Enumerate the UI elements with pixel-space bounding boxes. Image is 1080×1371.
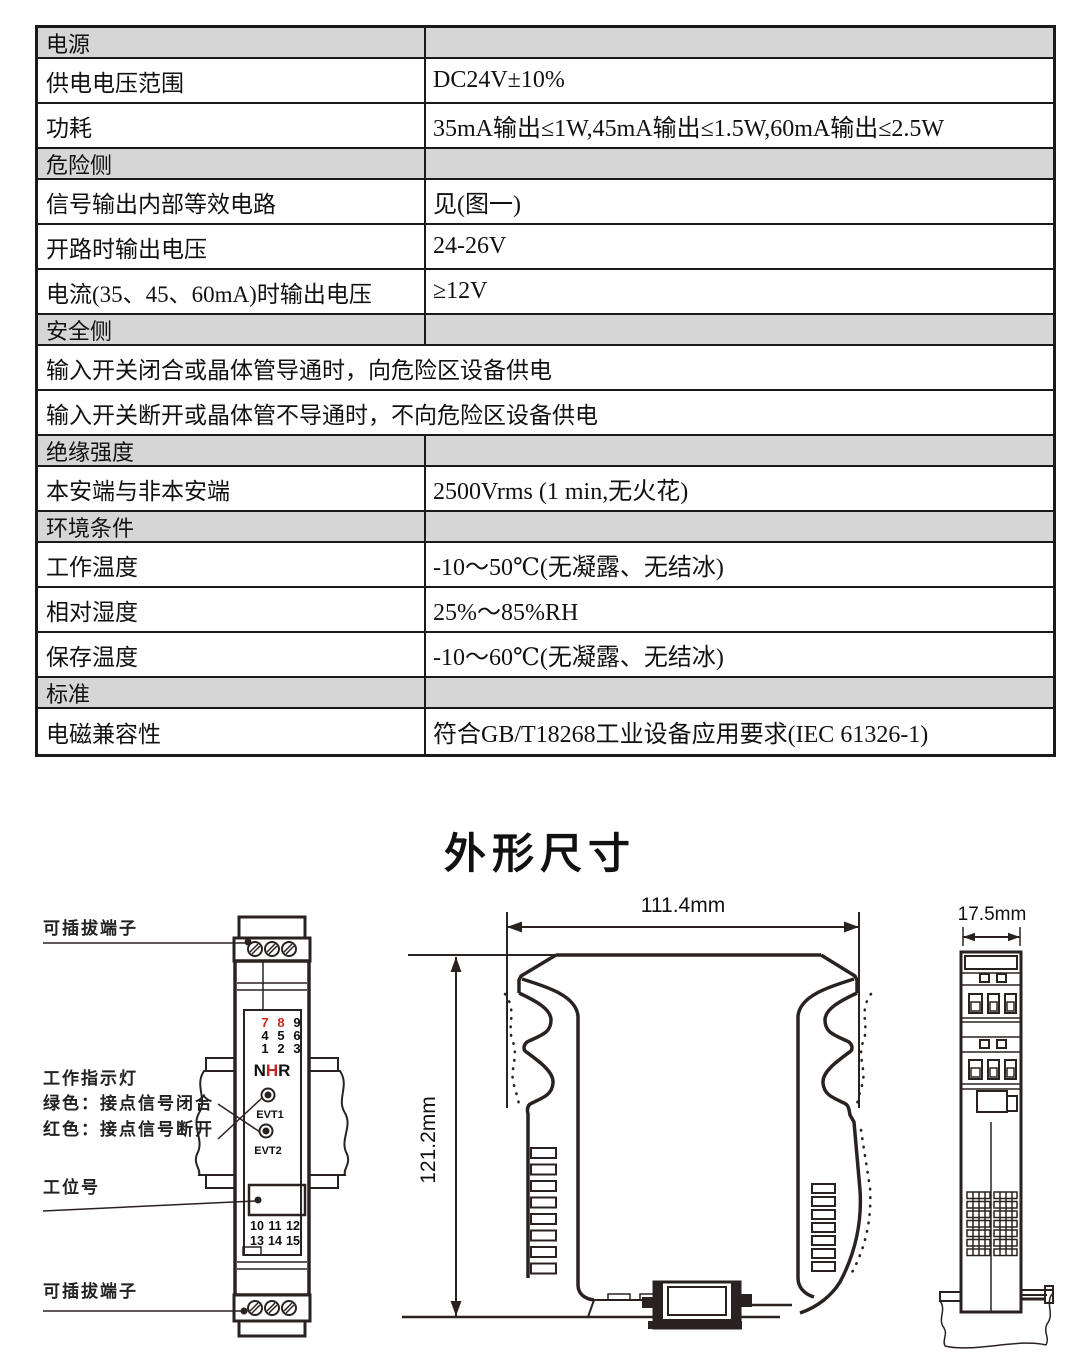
label-terminal-top: 可插拔端子 (43, 918, 138, 938)
section-label: 绝缘强度 (38, 436, 426, 465)
row-label: 相对湿度 (38, 588, 426, 631)
row-value: DC24V±10% (426, 59, 1053, 102)
svg-text:14: 14 (268, 1234, 282, 1248)
table-row: 电磁兼容性符合GB/T18268工业设备应用要求(IEC 61326-1) (38, 709, 1053, 754)
table-row: 开路时输出电压24-26V (38, 225, 1053, 270)
section-label: 电源 (38, 28, 426, 57)
front-view-drawing: 7 8 9 4 5 6 1 2 3 NHR EVT1 EVT2 (30, 898, 375, 1364)
table-row: 功耗35mA输出≤1W,45mA输出≤1.5W,60mA输出≤2.5W (38, 104, 1053, 149)
terminal-pointer-dot (245, 939, 252, 946)
module-end (940, 952, 1053, 1348)
brand-logo: NHR (254, 1061, 291, 1080)
svg-text:11: 11 (268, 1219, 281, 1233)
terminal-numbers-bottom: 10 11 12 13 14 15 (250, 1219, 300, 1248)
row-value: 25%～85%RH (426, 588, 1053, 631)
section-spacer (426, 678, 1053, 707)
side-view-drawing: 111.4mm 121.2mm (388, 890, 903, 1368)
svg-text:2: 2 (277, 1041, 284, 1056)
height-dimension: 121.2mm (408, 955, 556, 1316)
row-value: 35mA输出≤1W,45mA输出≤1.5W,60mA输出≤2.5W (426, 104, 1053, 147)
table-row: 保存温度-10～60℃(无凝露、无结冰) (38, 633, 1053, 678)
table-row: 信号输出内部等效电路见(图一) (38, 180, 1053, 225)
svg-text:12: 12 (286, 1219, 300, 1233)
vent-slots-left (531, 1148, 556, 1274)
row-label: 功耗 (38, 104, 426, 147)
table-section-row: 环境条件 (38, 512, 1053, 543)
table-row: 工作温度-10～50℃(无凝露、无结冰) (38, 543, 1053, 588)
table-row: 相对湿度25%～85%RH (38, 588, 1053, 633)
table-row: 输入开关断开或晶体管不导通时，不向危险区设备供电 (38, 391, 1053, 436)
row-value: 24-26V (426, 225, 1053, 268)
row-value: -10～50℃(无凝露、无结冰) (426, 543, 1053, 586)
end-view-drawing: 17.5mm (928, 890, 1073, 1371)
height-dim-label: 121.2mm (417, 1096, 440, 1184)
width-dim-label: 111.4mm (641, 894, 725, 917)
row-label: 信号输出内部等效电路 (38, 180, 426, 223)
table-section-row: 绝缘强度 (38, 436, 1053, 467)
row-label: 开路时输出电压 (38, 225, 426, 268)
row-label: 电磁兼容性 (38, 709, 426, 754)
led2-label: EVT2 (254, 1145, 282, 1157)
svg-text:13: 13 (250, 1234, 264, 1248)
led1-label: EVT1 (256, 1109, 284, 1121)
row-label: 供电电压范围 (38, 59, 426, 102)
label-indicator-green: 绿色：接点信号闭合 (43, 1093, 214, 1113)
row-value: 符合GB/T18268工业设备应用要求(IEC 61326-1) (426, 709, 1053, 754)
section-spacer (426, 436, 1053, 465)
module-front: 7 8 9 4 5 6 1 2 3 NHR EVT1 EVT2 (234, 917, 310, 1336)
row-value: ≥12V (426, 270, 1053, 313)
table-section-row: 标准 (38, 678, 1053, 709)
table-section-row: 电源 (38, 28, 1053, 59)
datasheet-page: 电源供电电压范围DC24V±10%功耗35mA输出≤1W,45mA输出≤1.5W… (0, 0, 1080, 1371)
label-indicator-red: 红色：接点信号断开 (43, 1119, 214, 1139)
table-row: 供电电压范围DC24V±10% (38, 59, 1053, 104)
section-spacer (426, 512, 1053, 541)
row-value: 2500Vrms (1 min,无火花) (426, 467, 1053, 510)
table-section-row: 危险侧 (38, 149, 1053, 180)
row-text: 输入开关断开或晶体管不导通时，不向危险区设备供电 (38, 391, 1053, 434)
module-profile (505, 955, 871, 1329)
svg-text:15: 15 (286, 1234, 300, 1248)
table-row: 电流(35、45、60mA)时输出电压≥12V (38, 270, 1053, 315)
section-label: 安全侧 (38, 315, 426, 344)
row-value: -10～60℃(无凝露、无结冰) (426, 633, 1053, 676)
section-label: 标准 (38, 678, 426, 707)
svg-text:10: 10 (250, 1219, 264, 1233)
section-label: 环境条件 (38, 512, 426, 541)
label-terminal-bottom: 可插拔端子 (43, 1281, 138, 1301)
depth-dimension: 17.5mm (958, 904, 1027, 946)
din-clip (642, 1282, 752, 1329)
svg-text:1: 1 (261, 1041, 268, 1056)
vent-slots-right (812, 1184, 835, 1271)
spec-table: 电源供电电压范围DC24V±10%功耗35mA输出≤1W,45mA输出≤1.5W… (35, 25, 1056, 757)
section-spacer (426, 28, 1053, 57)
section-spacer (426, 149, 1053, 178)
table-section-row: 安全侧 (38, 315, 1053, 346)
row-label: 保存温度 (38, 633, 426, 676)
depth-dim-label: 17.5mm (958, 904, 1027, 925)
label-indicator-title: 工作指示灯 (43, 1068, 138, 1088)
row-text: 输入开关闭合或晶体管导通时，向危险区设备供电 (38, 346, 1053, 389)
page-title: 外形尺寸 (0, 820, 1080, 881)
table-row: 输入开关闭合或晶体管导通时，向危险区设备供电 (38, 346, 1053, 391)
row-value: 见(图一) (426, 180, 1053, 223)
row-label: 本安端与非本安端 (38, 467, 426, 510)
terminal-numbers-top: 7 8 9 4 5 6 1 2 3 (261, 1015, 300, 1056)
section-label: 危险侧 (38, 149, 426, 178)
svg-text:3: 3 (293, 1041, 300, 1056)
table-row: 本安端与非本安端2500Vrms (1 min,无火花) (38, 467, 1053, 512)
section-spacer (426, 315, 1053, 344)
row-label: 工作温度 (38, 543, 426, 586)
label-station: 工位号 (43, 1177, 100, 1197)
row-label: 电流(35、45、60mA)时输出电压 (38, 270, 426, 313)
